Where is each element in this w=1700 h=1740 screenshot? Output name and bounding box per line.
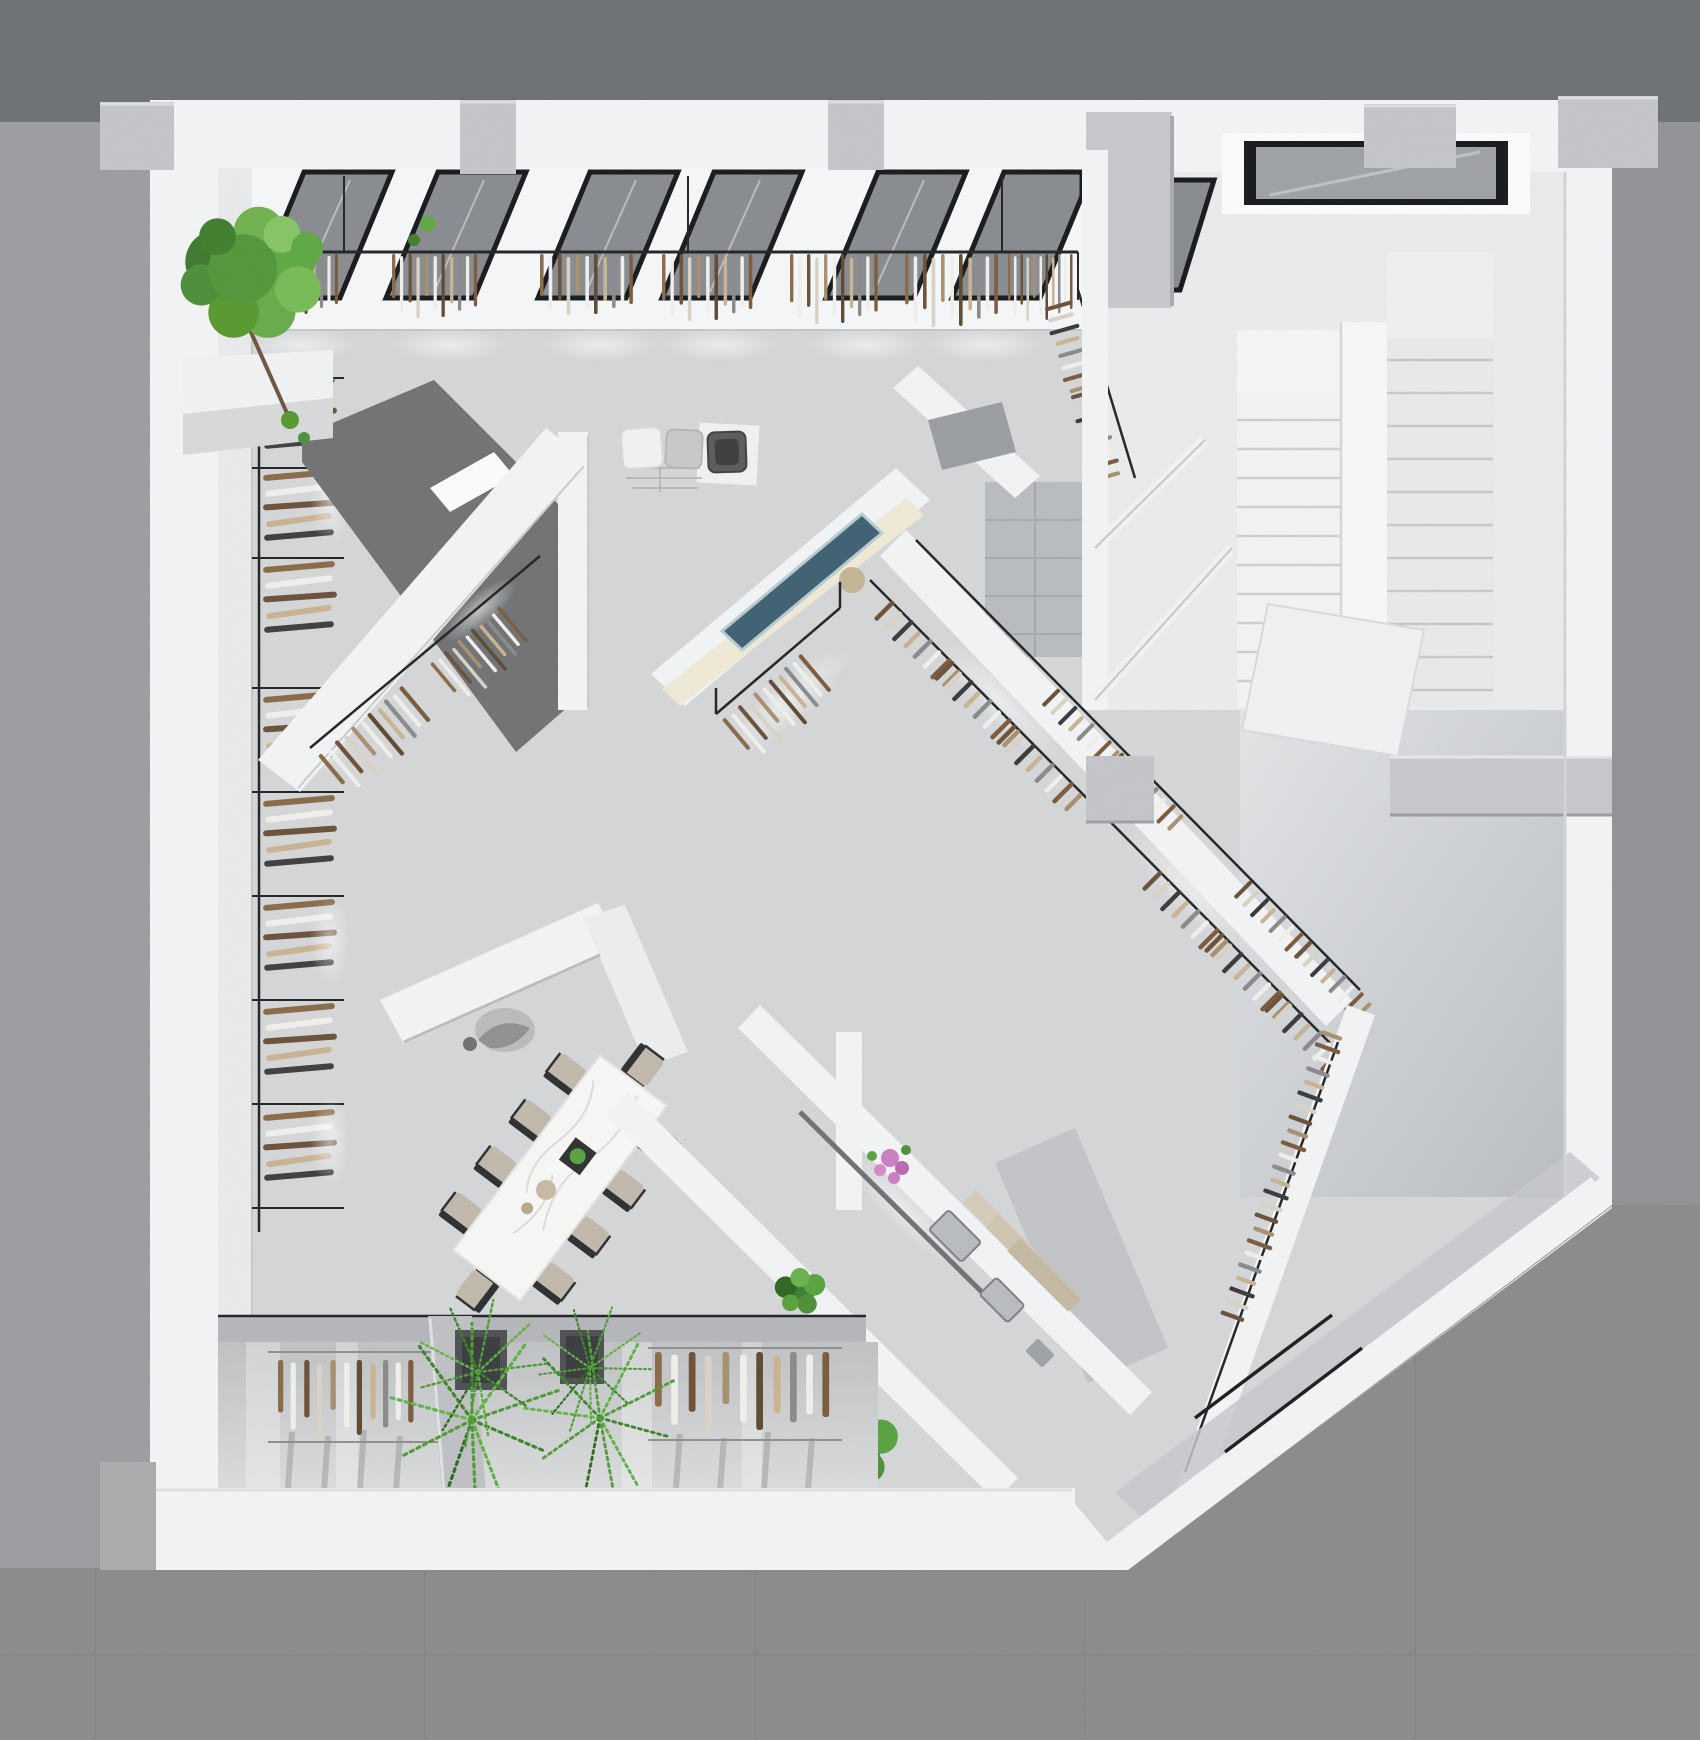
floor-plan-svg — [0, 0, 1700, 1740]
grain-overlay — [0, 0, 1700, 1740]
floor-plan-render — [0, 0, 1700, 1740]
